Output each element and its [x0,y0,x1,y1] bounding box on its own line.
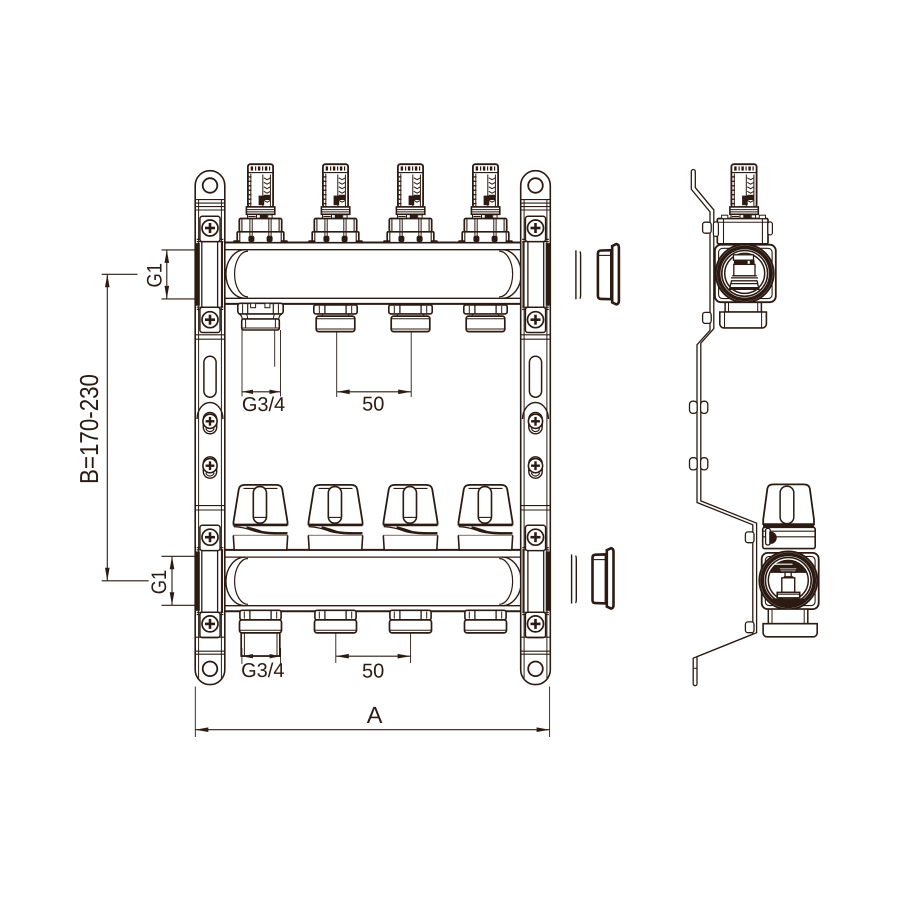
svg-text:50: 50 [362,393,384,415]
svg-text:B=170-230: B=170-230 [74,374,104,484]
svg-text:G1: G1 [143,263,166,288]
svg-text:50: 50 [362,661,384,683]
svg-text:G3/4: G3/4 [242,394,285,416]
svg-text:G1: G1 [148,570,171,595]
svg-text:G3/4: G3/4 [241,660,284,682]
svg-text:A: A [367,702,383,728]
